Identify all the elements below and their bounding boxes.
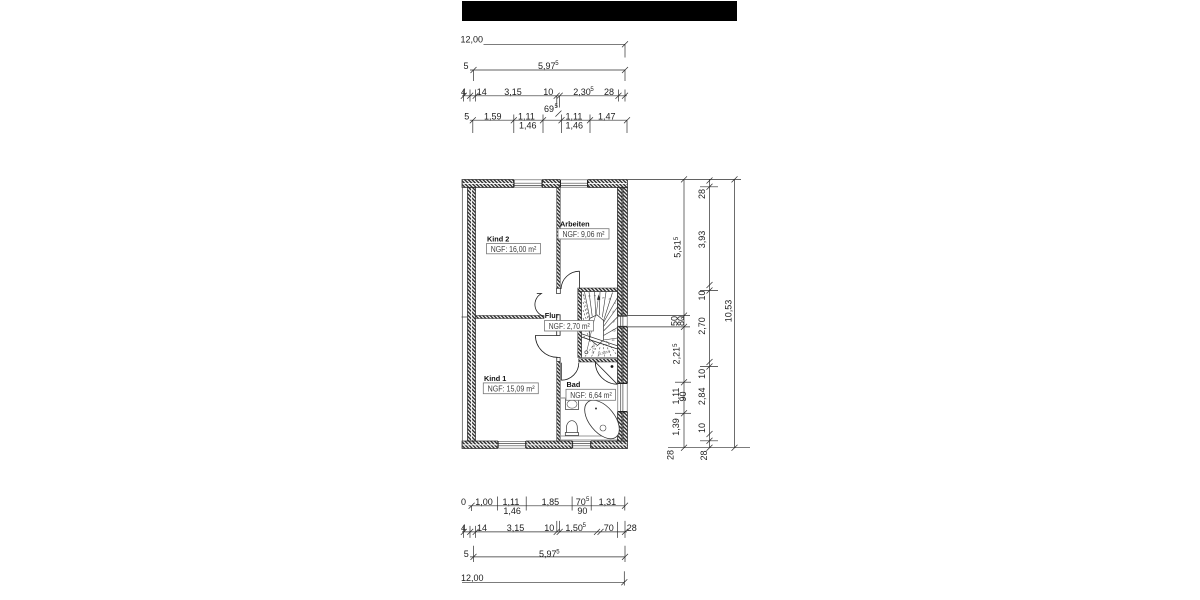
svg-text:5: 5 [464,111,469,121]
svg-text:5: 5 [464,61,469,71]
svg-text:69: 69 [544,104,554,114]
svg-text:1,46: 1,46 [519,121,537,131]
svg-text:1,31: 1,31 [599,497,617,507]
svg-text:Arbeiten: Arbeiten [560,220,590,229]
svg-text:28: 28 [604,87,614,97]
svg-text:1,59: 1,59 [484,111,502,121]
svg-text:Kind 2: Kind 2 [487,234,509,243]
svg-text:3,15: 3,15 [507,523,525,533]
svg-text:NGF: 15,09 m²: NGF: 15,09 m² [488,383,535,393]
svg-text:12,00: 12,00 [461,35,484,45]
svg-text:0: 0 [461,497,466,507]
svg-text:1,00: 1,00 [475,497,493,507]
svg-text:1,47: 1,47 [598,111,616,121]
svg-text:80: 80 [676,316,686,326]
svg-text:10: 10 [697,423,707,433]
svg-text:Flur: Flur [545,311,559,320]
svg-text:28: 28 [627,523,637,533]
svg-text:NGF: 9,06 m²: NGF: 9,06 m² [563,229,605,239]
svg-text:1,85: 1,85 [542,497,560,507]
svg-text:90: 90 [577,506,587,516]
svg-text:14: 14 [477,87,487,97]
svg-text:NGF: 6,64 m²: NGF: 6,64 m² [570,390,612,400]
svg-text:10: 10 [543,87,553,97]
svg-text:1,39: 1,39 [671,418,681,436]
svg-text:5,97: 5,97 [539,549,557,559]
svg-text:10: 10 [544,523,554,533]
svg-text:11: 11 [611,338,615,342]
svg-text:Kind 1: Kind 1 [484,374,506,383]
svg-text:10: 10 [697,290,707,300]
svg-text:5: 5 [464,549,469,559]
svg-text:NGF: 2,70 m²: NGF: 2,70 m² [549,321,590,331]
svg-text:1,50: 1,50 [565,523,583,533]
svg-text:1,46: 1,46 [566,121,584,131]
svg-text:90: 90 [678,391,688,401]
svg-text:3,15: 3,15 [504,87,522,97]
svg-text:14: 14 [477,523,487,533]
svg-text:10,53: 10,53 [724,300,734,323]
svg-text:2,30: 2,30 [573,87,591,97]
svg-text:70: 70 [604,523,614,533]
svg-text:12,00: 12,00 [461,573,484,583]
svg-text:28: 28 [699,450,709,460]
svg-text:2,70: 2,70 [697,317,707,335]
svg-text:2,84: 2,84 [697,388,707,406]
svg-text:28: 28 [666,450,676,460]
svg-text:NGF: 16,00 m²: NGF: 16,00 m² [491,244,537,254]
svg-text:28: 28 [697,189,707,199]
svg-text:5,97: 5,97 [538,61,556,71]
svg-text:1,46: 1,46 [503,506,521,516]
svg-text:Bad: Bad [567,380,581,389]
svg-text:3,93: 3,93 [697,231,707,249]
svg-text:10: 10 [697,369,707,379]
